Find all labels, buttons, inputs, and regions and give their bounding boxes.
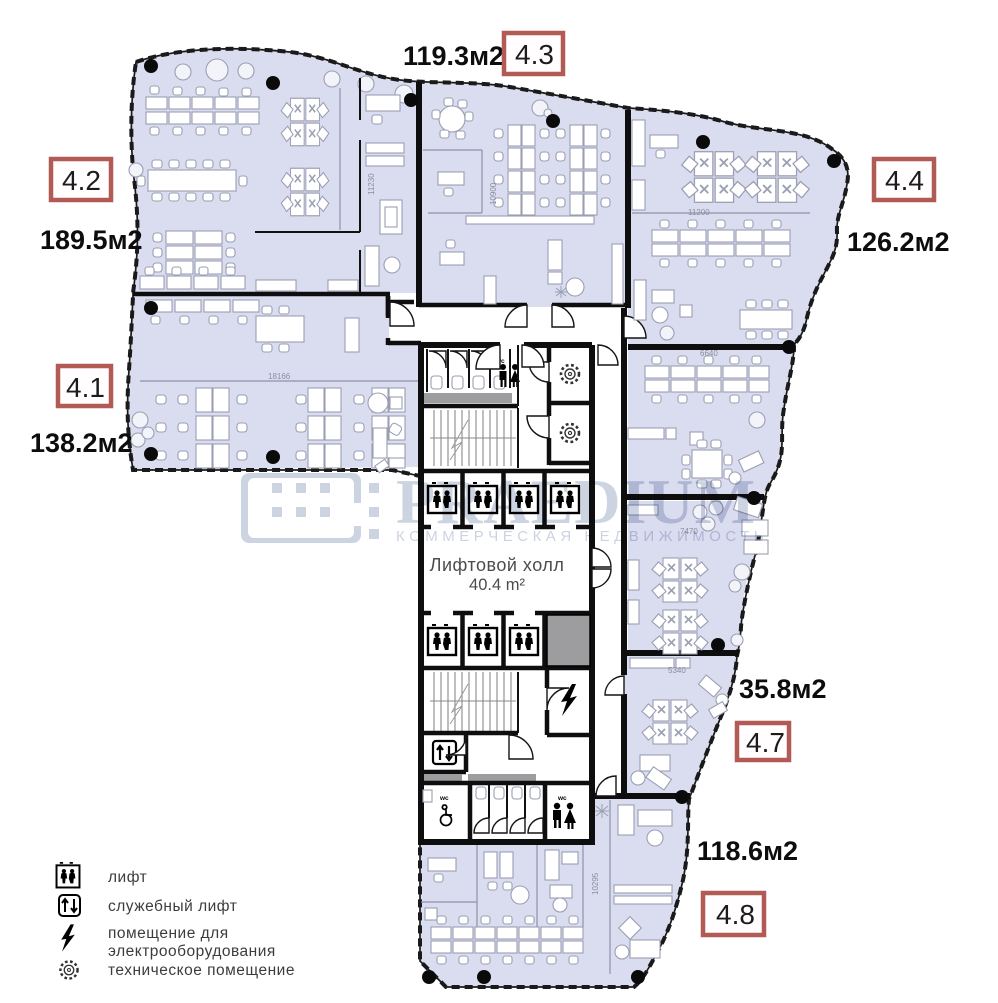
svg-text:4.4: 4.4 [885,165,924,196]
svg-text:электрооборудования: электрооборудования [108,943,276,960]
svg-text:техническое помещение: техническое помещение [108,962,295,979]
svg-text:Лифтовой холл: Лифтовой холл [430,555,565,575]
svg-text:помещение для: помещение для [108,925,229,942]
svg-text:PRAEDIUM: PRAEDIUM [396,466,756,537]
svg-text:лифт: лифт [108,869,147,886]
svg-text:6640: 6640 [700,349,718,358]
svg-text:4.8: 4.8 [716,899,755,930]
svg-text:служебный лифт: служебный лифт [108,898,237,915]
svg-text:119.3м2: 119.3м2 [403,41,504,71]
svg-text:126.2м2: 126.2м2 [847,227,950,257]
svg-text:4.7: 4.7 [746,727,785,758]
svg-text:wc: wc [557,795,567,802]
svg-text:40.4 m²: 40.4 m² [469,576,525,594]
svg-text:35.8м2: 35.8м2 [739,674,827,704]
svg-text:4.2: 4.2 [62,165,101,196]
svg-text:10295: 10295 [591,872,600,895]
svg-text:wc: wc [439,795,449,802]
svg-text:189.5м2: 189.5м2 [40,225,143,255]
svg-text:18166: 18166 [268,372,291,381]
svg-text:138.2м2: 138.2м2 [30,428,133,458]
svg-text:10900: 10900 [489,182,498,205]
svg-text:11200: 11200 [688,208,710,217]
svg-text:4.3: 4.3 [515,39,554,70]
svg-text:КОММЕРЧЕСКАЯ НЕДВИЖИМОСТЬ: КОММЕРЧЕСКАЯ НЕДВИЖИМОСТЬ [396,528,768,545]
svg-text:118.6м2: 118.6м2 [697,836,798,866]
svg-text:11230: 11230 [367,173,376,195]
svg-text:4.1: 4.1 [66,372,105,403]
svg-text:5340: 5340 [668,666,686,675]
